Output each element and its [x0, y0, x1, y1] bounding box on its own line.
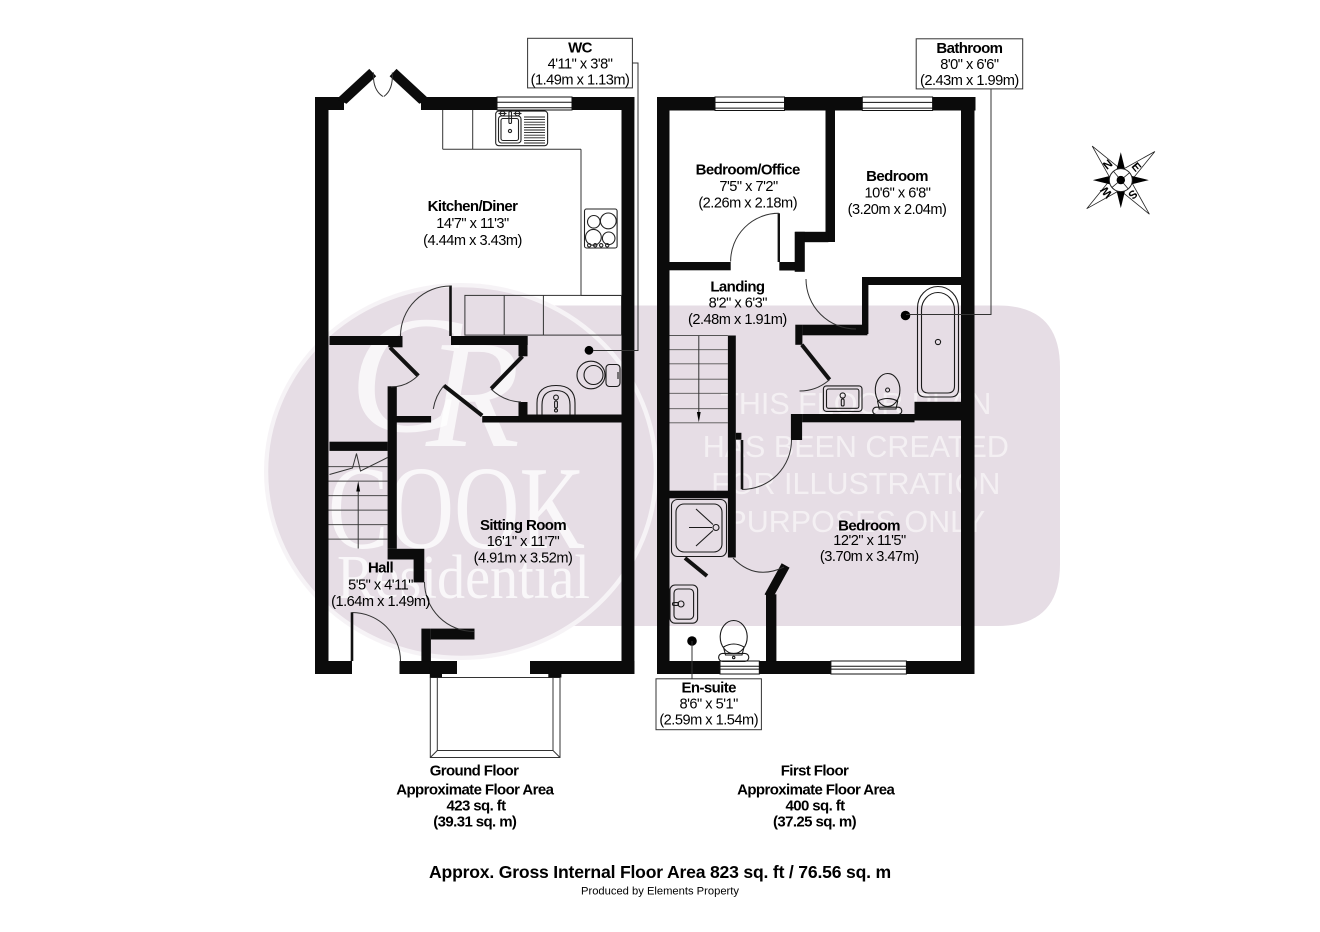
- svg-text:16'1" x 11'7": 16'1" x 11'7": [487, 534, 560, 550]
- svg-text:Bedroom: Bedroom: [838, 518, 900, 535]
- svg-text:(1.64m x 1.49m): (1.64m x 1.49m): [331, 594, 430, 610]
- svg-text:5'5" x 4'11": 5'5" x 4'11": [348, 578, 413, 594]
- svg-text:(4.91m x 3.52m): (4.91m x 3.52m): [474, 551, 573, 567]
- svg-text:(3.20m x 2.04m): (3.20m x 2.04m): [848, 202, 947, 218]
- svg-text:8'6" x 5'1": 8'6" x 5'1": [680, 697, 739, 713]
- svg-text:First Floor: First Floor: [781, 763, 849, 780]
- svg-text:Bedroom/Office: Bedroom/Office: [696, 162, 800, 179]
- svg-text:FOR ILLUSTRATION: FOR ILLUSTRATION: [711, 467, 1000, 501]
- svg-text:Bathroom: Bathroom: [936, 40, 1002, 57]
- svg-text:Approx. Gross Internal Floor A: Approx. Gross Internal Floor Area 823 sq…: [429, 862, 891, 882]
- svg-text:Hall: Hall: [368, 560, 394, 577]
- svg-text:Landing: Landing: [710, 279, 765, 296]
- svg-text:14'7" x 11'3": 14'7" x 11'3": [436, 216, 509, 232]
- svg-text:12'2" x 11'5": 12'2" x 11'5": [833, 533, 906, 549]
- svg-text:(4.44m x 3.43m): (4.44m x 3.43m): [423, 233, 522, 249]
- svg-text:8'0" x 6'6": 8'0" x 6'6": [940, 57, 999, 73]
- svg-text:Approximate Floor Area: Approximate Floor Area: [737, 782, 895, 799]
- svg-text:8'2" x 6'3": 8'2" x 6'3": [709, 296, 768, 312]
- svg-text:4'11" x 3'8": 4'11" x 3'8": [548, 57, 613, 73]
- svg-text:423 sq. ft: 423 sq. ft: [446, 798, 506, 815]
- svg-text:7'5" x 7'2": 7'5" x 7'2": [719, 179, 778, 195]
- svg-text:En-suite: En-suite: [682, 680, 737, 697]
- svg-text:Kitchen/Diner: Kitchen/Diner: [428, 198, 518, 215]
- svg-text:(2.59m x 1.54m): (2.59m x 1.54m): [659, 713, 758, 729]
- svg-text:WC: WC: [568, 40, 593, 57]
- svg-text:Bedroom: Bedroom: [866, 168, 928, 185]
- svg-text:Produced by Elements Property: Produced by Elements Property: [581, 886, 739, 898]
- svg-text:(2.26m x 2.18m): (2.26m x 2.18m): [698, 196, 797, 212]
- svg-text:(39.31 sq. m): (39.31 sq. m): [433, 814, 517, 831]
- svg-text:(2.43m x 1.99m): (2.43m x 1.99m): [920, 73, 1019, 89]
- svg-text:Ground Floor: Ground Floor: [430, 763, 519, 780]
- svg-text:400 sq. ft: 400 sq. ft: [785, 798, 845, 815]
- svg-text:Approximate Floor Area: Approximate Floor Area: [396, 782, 554, 799]
- svg-text:(1.49m x 1.13m): (1.49m x 1.13m): [531, 73, 630, 89]
- svg-text:10'6" x 6'8": 10'6" x 6'8": [865, 186, 931, 202]
- svg-text:(3.70m x 3.47m): (3.70m x 3.47m): [820, 549, 919, 565]
- svg-text:(2.48m x 1.91m): (2.48m x 1.91m): [688, 312, 787, 328]
- svg-text:Sitting Room: Sitting Room: [480, 517, 566, 534]
- svg-text:(37.25 sq. m): (37.25 sq. m): [773, 814, 857, 831]
